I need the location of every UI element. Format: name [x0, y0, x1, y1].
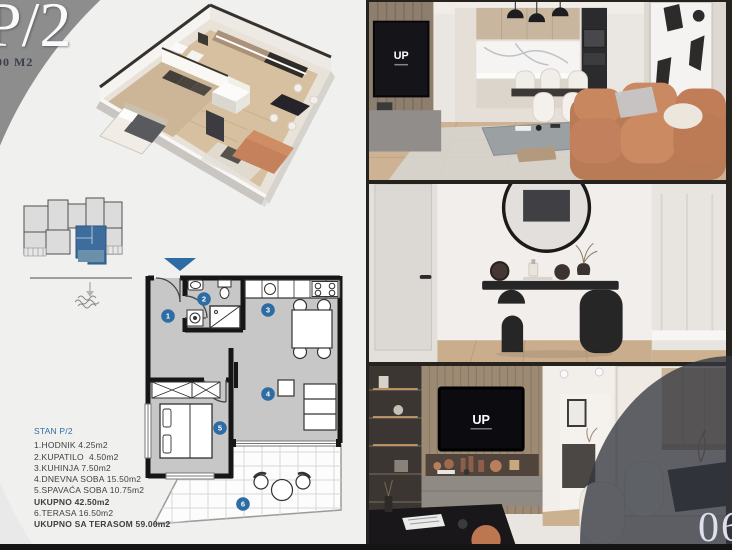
round-flask: [554, 264, 570, 280]
left-panel: 1 2 3 4 5 6 STAN P/2 1.HODNIK 4.25m2 2.K…: [0, 0, 366, 550]
room-marker-1: 1: [166, 312, 170, 321]
legend-item: 2.KUPATILO 4.50m2: [34, 452, 170, 463]
water-waves-icon: [75, 296, 99, 308]
room-marker-6: 6: [241, 500, 245, 509]
cup: [458, 519, 468, 529]
floor-plan-2d: 1 2 3 4 5 6: [142, 252, 348, 540]
tv-logo: UP: [394, 50, 409, 62]
photo-hallway: [369, 184, 726, 362]
legend-grand-total: UKUPNO SA TERASOM 59.00m2: [34, 519, 170, 530]
entry-door: [375, 184, 432, 350]
console-shadow: [496, 350, 613, 358]
room-marker-2: 2: [202, 295, 206, 304]
microwave: [584, 53, 605, 65]
wall-frame: [568, 400, 586, 426]
unit-code: P/2: [0, 0, 71, 62]
legend-total: UKUPNO 42.50m2: [34, 497, 170, 508]
kitchen-fixtures: [245, 280, 340, 298]
site-plan-highlighted-unit: [76, 226, 106, 264]
tv-on-plan: [234, 362, 238, 388]
down-arrow-icon: [86, 282, 94, 297]
unit-area-label: 00 M2: [0, 55, 33, 70]
sofa-pillow: [664, 103, 703, 129]
room-marker-3: 3: [266, 306, 270, 315]
photo-living-kitchen: UP: [369, 2, 726, 180]
media-console: [369, 110, 441, 151]
room-marker-5: 5: [218, 424, 222, 433]
perfume-cap: [531, 259, 535, 264]
console-decor: [377, 102, 393, 110]
bottom-bar: [0, 544, 732, 550]
round-clock: [491, 262, 509, 280]
room-legend: STAN P/2 1.HODNIK 4.25m2 2.KUPATILO 4.50…: [34, 426, 170, 531]
baseboard: [652, 330, 726, 340]
site-plan-building: [24, 198, 122, 254]
oven: [584, 30, 605, 48]
vase: [577, 263, 590, 275]
building-site-plan: [12, 190, 138, 310]
brochure-page: 1 2 3 4 5 6 STAN P/2 1.HODNIK 4.25m2 2.K…: [0, 0, 732, 550]
legend-item: 3.KUHINJA 7.50m2: [34, 463, 170, 474]
entrance-marker-icon: [164, 258, 196, 271]
tv-logo-subline: [394, 64, 408, 65]
tv-logo-subline: [470, 428, 491, 430]
diffuser: [385, 496, 393, 512]
door-handle: [420, 275, 432, 279]
legend-item: 4.DNEVNA SOBA 15.50m2: [34, 474, 170, 485]
legend-item: 5.SPAVAĆA SOBA 10.75m2: [34, 485, 170, 496]
legend-title: STAN P/2: [34, 426, 170, 437]
mirror-reflection: [523, 190, 570, 222]
tv-logo: UP: [472, 412, 490, 427]
terracotta-sofa: [570, 83, 726, 180]
iso-apartment-render: [78, 2, 344, 214]
perfume-bottle: [529, 263, 538, 276]
tray: [523, 277, 552, 280]
legend-item: 6.TERASA 16.50m2: [34, 508, 170, 519]
legend-item: 1.HODNIK 4.25m2: [34, 440, 170, 451]
